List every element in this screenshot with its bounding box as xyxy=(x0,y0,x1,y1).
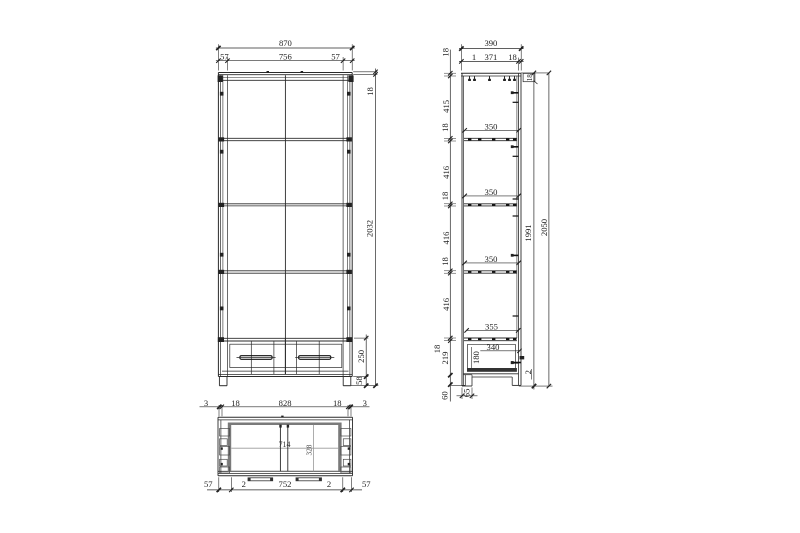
svg-text:2032: 2032 xyxy=(365,220,375,237)
svg-text:416: 416 xyxy=(441,165,451,179)
svg-text:18: 18 xyxy=(440,123,450,132)
svg-text:355: 355 xyxy=(485,322,498,332)
svg-text:390: 390 xyxy=(484,38,497,48)
svg-text:328: 328 xyxy=(305,444,314,455)
svg-text:2050: 2050 xyxy=(539,219,549,236)
svg-text:250: 250 xyxy=(356,350,366,363)
svg-text:752: 752 xyxy=(279,479,292,489)
svg-text:18: 18 xyxy=(440,192,450,201)
svg-text:415: 415 xyxy=(441,100,451,113)
svg-text:58: 58 xyxy=(354,376,364,385)
svg-text:18: 18 xyxy=(333,398,342,408)
svg-text:57: 57 xyxy=(362,479,371,489)
svg-text:180: 180 xyxy=(471,351,481,364)
svg-text:3: 3 xyxy=(363,398,367,408)
svg-text:416: 416 xyxy=(441,297,451,311)
svg-text:60: 60 xyxy=(440,391,450,400)
svg-text:371: 371 xyxy=(484,52,497,62)
svg-text:65: 65 xyxy=(461,389,471,398)
svg-text:3: 3 xyxy=(204,398,208,408)
svg-text:57: 57 xyxy=(331,52,340,62)
svg-text:18: 18 xyxy=(440,48,450,57)
svg-text:416: 416 xyxy=(441,231,451,245)
svg-text:57: 57 xyxy=(204,479,213,489)
svg-text:2: 2 xyxy=(242,479,246,489)
svg-text:1991: 1991 xyxy=(523,224,533,241)
svg-text:350: 350 xyxy=(485,254,498,264)
svg-text:57: 57 xyxy=(220,52,229,62)
svg-text:828: 828 xyxy=(279,398,292,408)
svg-text:350: 350 xyxy=(485,187,498,197)
svg-text:18: 18 xyxy=(231,398,240,408)
svg-text:2: 2 xyxy=(327,479,331,489)
svg-text:756: 756 xyxy=(279,52,293,62)
svg-text:1: 1 xyxy=(472,52,476,62)
svg-text:18: 18 xyxy=(365,87,375,96)
svg-text:219: 219 xyxy=(440,352,450,365)
svg-text:340: 340 xyxy=(487,342,500,352)
svg-text:18: 18 xyxy=(508,52,517,62)
svg-text:18: 18 xyxy=(440,257,450,266)
svg-text:870: 870 xyxy=(279,38,292,48)
svg-text:350: 350 xyxy=(485,121,498,131)
